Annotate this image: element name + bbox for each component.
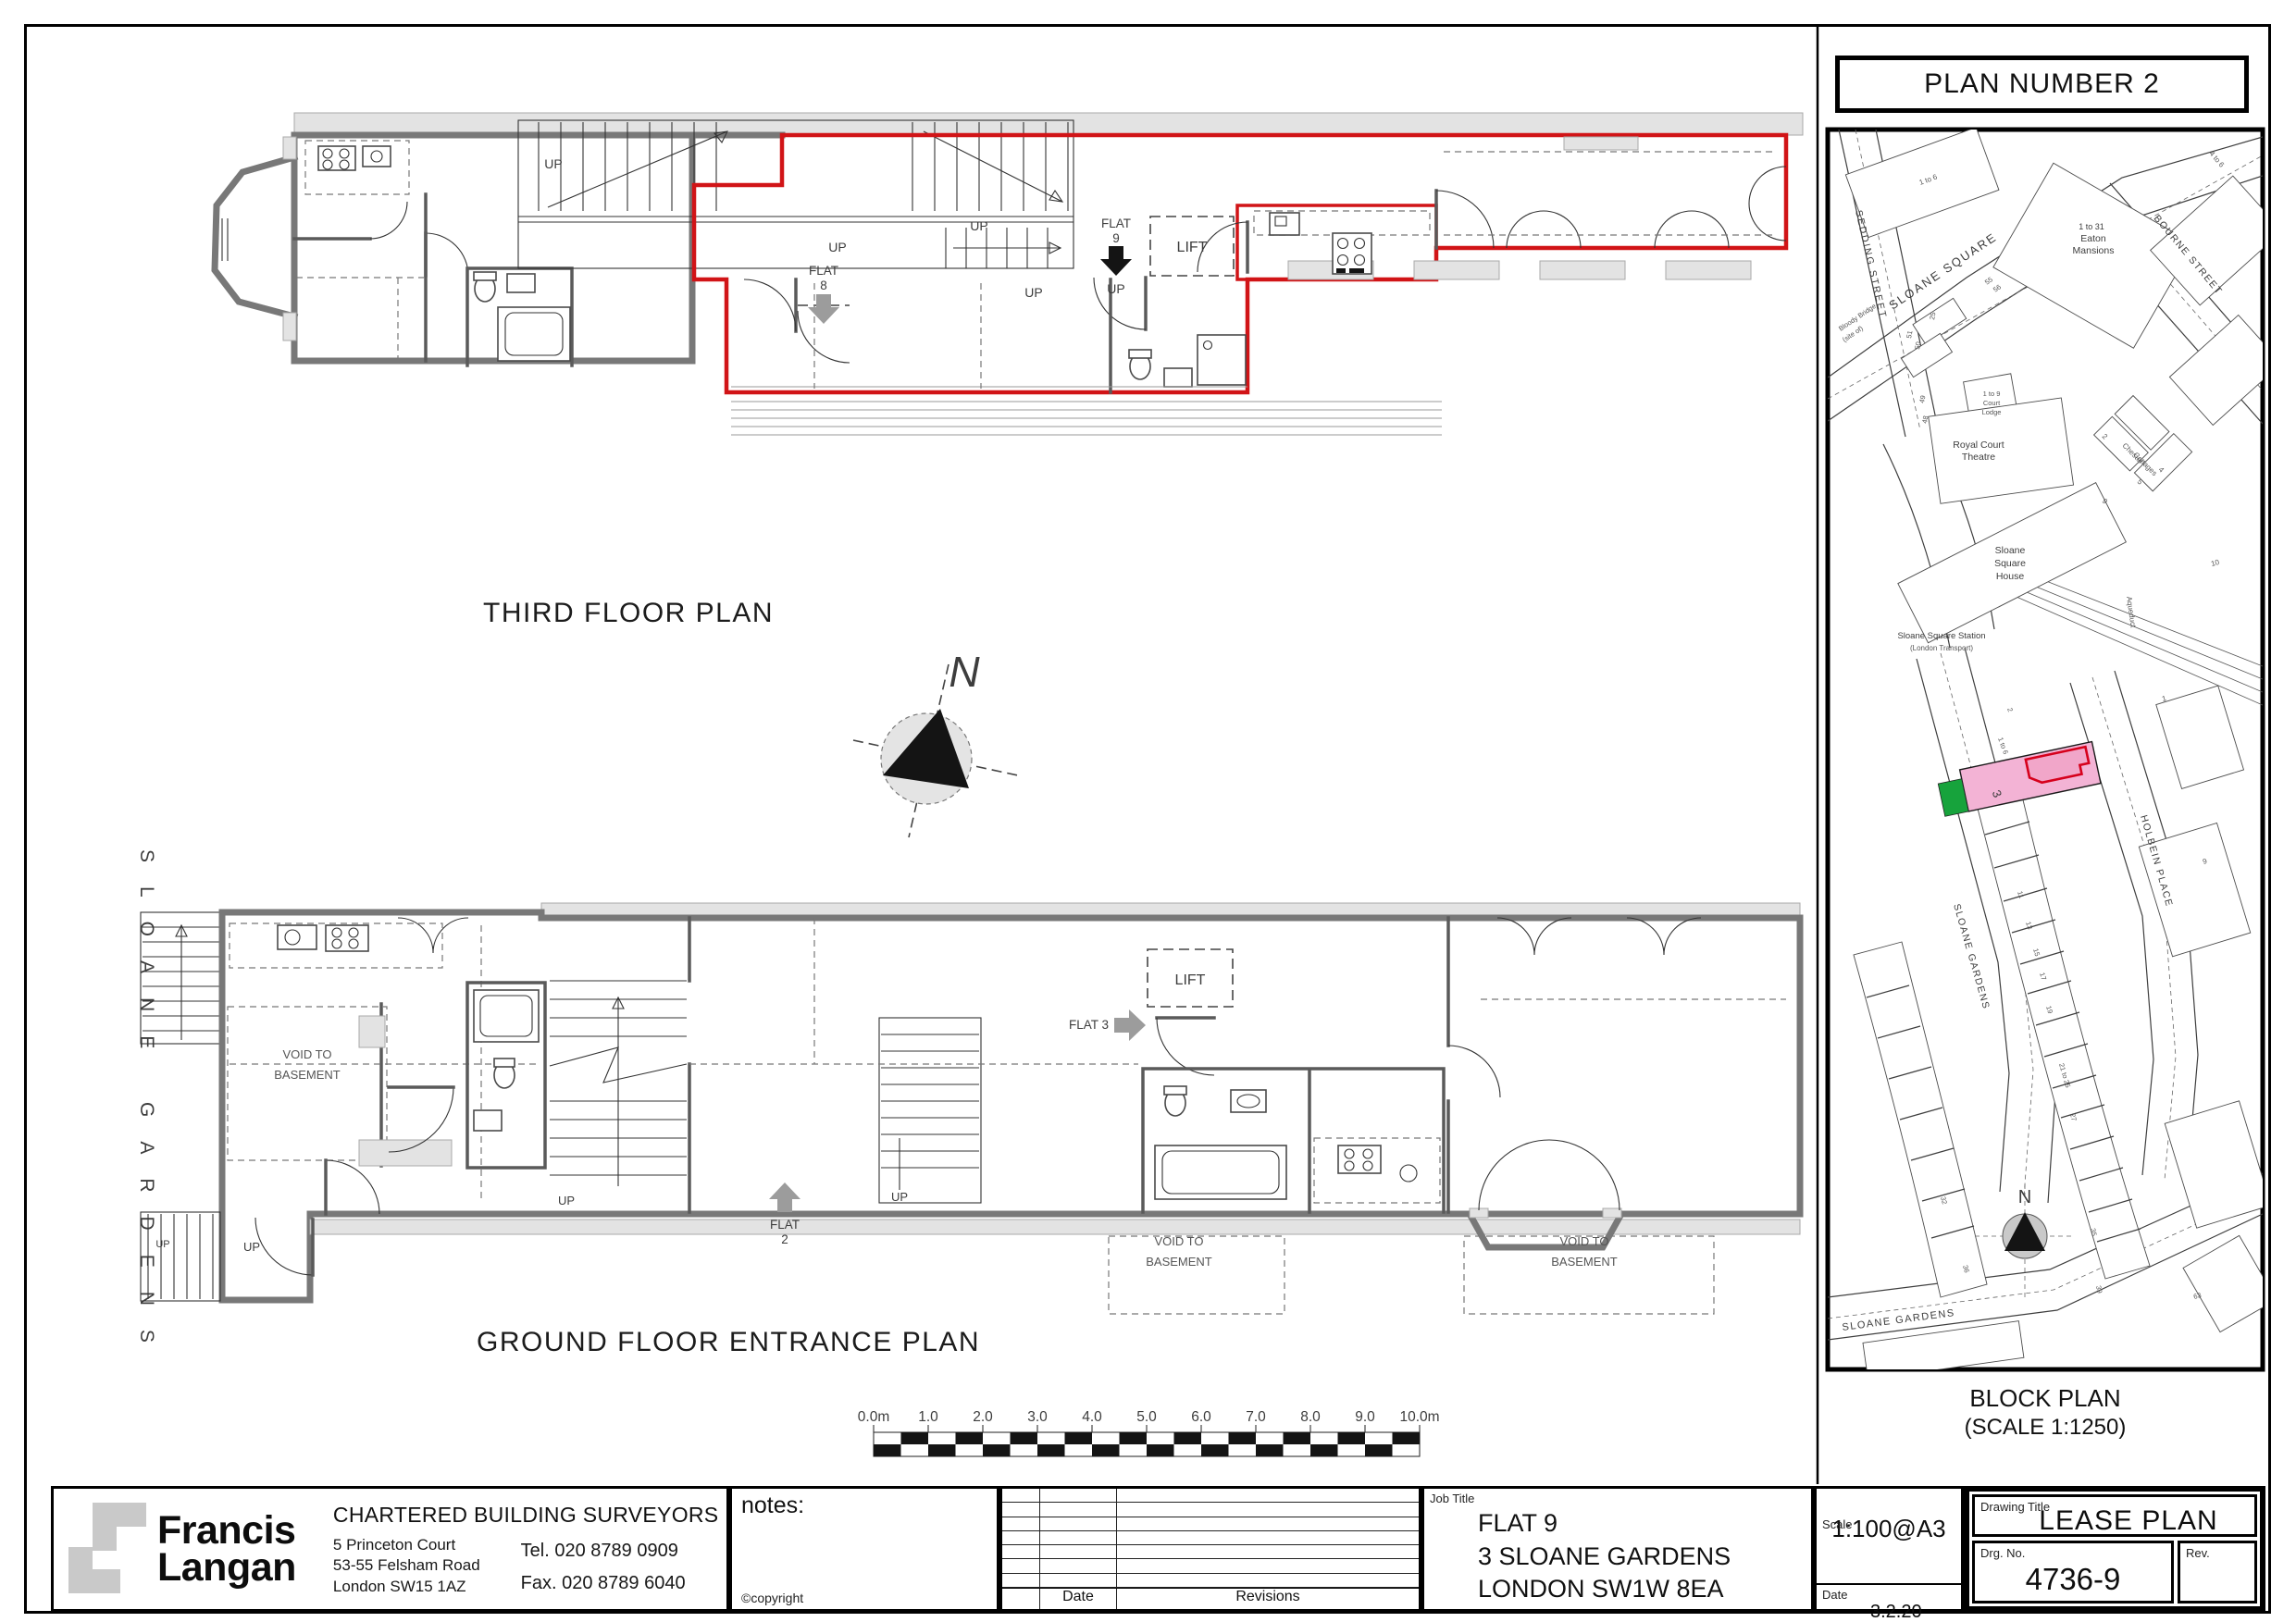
date-label: Date [1822,1588,1847,1602]
notes-label: notes: [732,1489,997,1519]
notes-box: notes: ©copyright [729,1486,999,1612]
firm-details: CHARTERED BUILDING SURVEYORS 5 Princeton… [296,1499,726,1600]
firm-name-line2: Langan [157,1549,296,1586]
job-title-line3: LONDON SW1W 8EA [1478,1573,1811,1606]
job-title-line1: FLAT 9 [1478,1507,1811,1541]
date-value: 3.2.20 [1870,1602,1922,1622]
drg-no-value: 4736-9 [1975,1562,2171,1597]
revisions-table: Date Revisions [999,1486,1421,1612]
firm-address: 5 Princeton Court 53-55 Felsham Road Lon… [333,1535,480,1600]
firm-name-line1: Francis [157,1512,296,1549]
firm-type: CHARTERED BUILDING SURVEYORS [333,1503,726,1528]
drg-no-label: Drg. No. [1980,1546,2025,1560]
rev-label: Rev. [2186,1546,2210,1560]
job-title-value: FLAT 9 3 SLOANE GARDENS LONDON SW1W 8EA [1424,1489,1811,1606]
firm-address-line1: 5 Princeton Court [333,1535,480,1556]
scale-date-box: Scale 1:100@A3 Date 3.2.20 [1814,1486,1964,1612]
job-title-box: Job Title FLAT 9 3 SLOANE GARDENS LONDON… [1421,1486,1814,1612]
plan-number-text: PLAN NUMBER 2 [1924,68,2160,100]
sheet-border [24,24,2271,1614]
firm-phones: Tel. 020 8789 0909 Fax. 020 8789 6040 [521,1535,686,1600]
drawing-sheet: FLAT 9 FLAT 8 LIFT UP UP UP UP UP THIRD … [0,0,2296,1622]
firm-address-line3: London SW15 1AZ [333,1577,480,1598]
revisions-header: Revisions [1117,1589,1419,1609]
block-plan-caption-line1: BLOCK PLAN [1828,1384,2263,1413]
firm-fax: Fax. 020 8789 6040 [521,1567,686,1600]
drawing-title-label: Drawing Title [1980,1500,2050,1514]
firm-name: Francis Langan [157,1512,296,1587]
block-plan-caption-line2: (SCALE 1:1250) [1828,1413,2263,1442]
revisions-date-header: Date [1040,1589,1117,1609]
plan-number-title: PLAN NUMBER 2 [1835,56,2249,113]
surveyor-box: Francis Langan CHARTERED BUILDING SURVEY… [51,1486,729,1612]
job-title-line2: 3 SLOANE GARDENS [1478,1541,1811,1574]
drawing-title-block: Drawing Title LEASE PLAN Drg. No. 4736-9… [1964,1486,2265,1612]
block-plan-caption: BLOCK PLAN (SCALE 1:1250) [1828,1384,2263,1442]
firm-tel: Tel. 020 8789 0909 [521,1535,686,1567]
scale-label: Scale [1822,1517,1853,1531]
job-title-label: Job Title [1430,1492,1474,1505]
copyright-note: ©copyright [741,1591,803,1605]
francis-langan-logo-icon [65,1499,150,1599]
firm-address-line2: 53-55 Felsham Road [333,1555,480,1577]
